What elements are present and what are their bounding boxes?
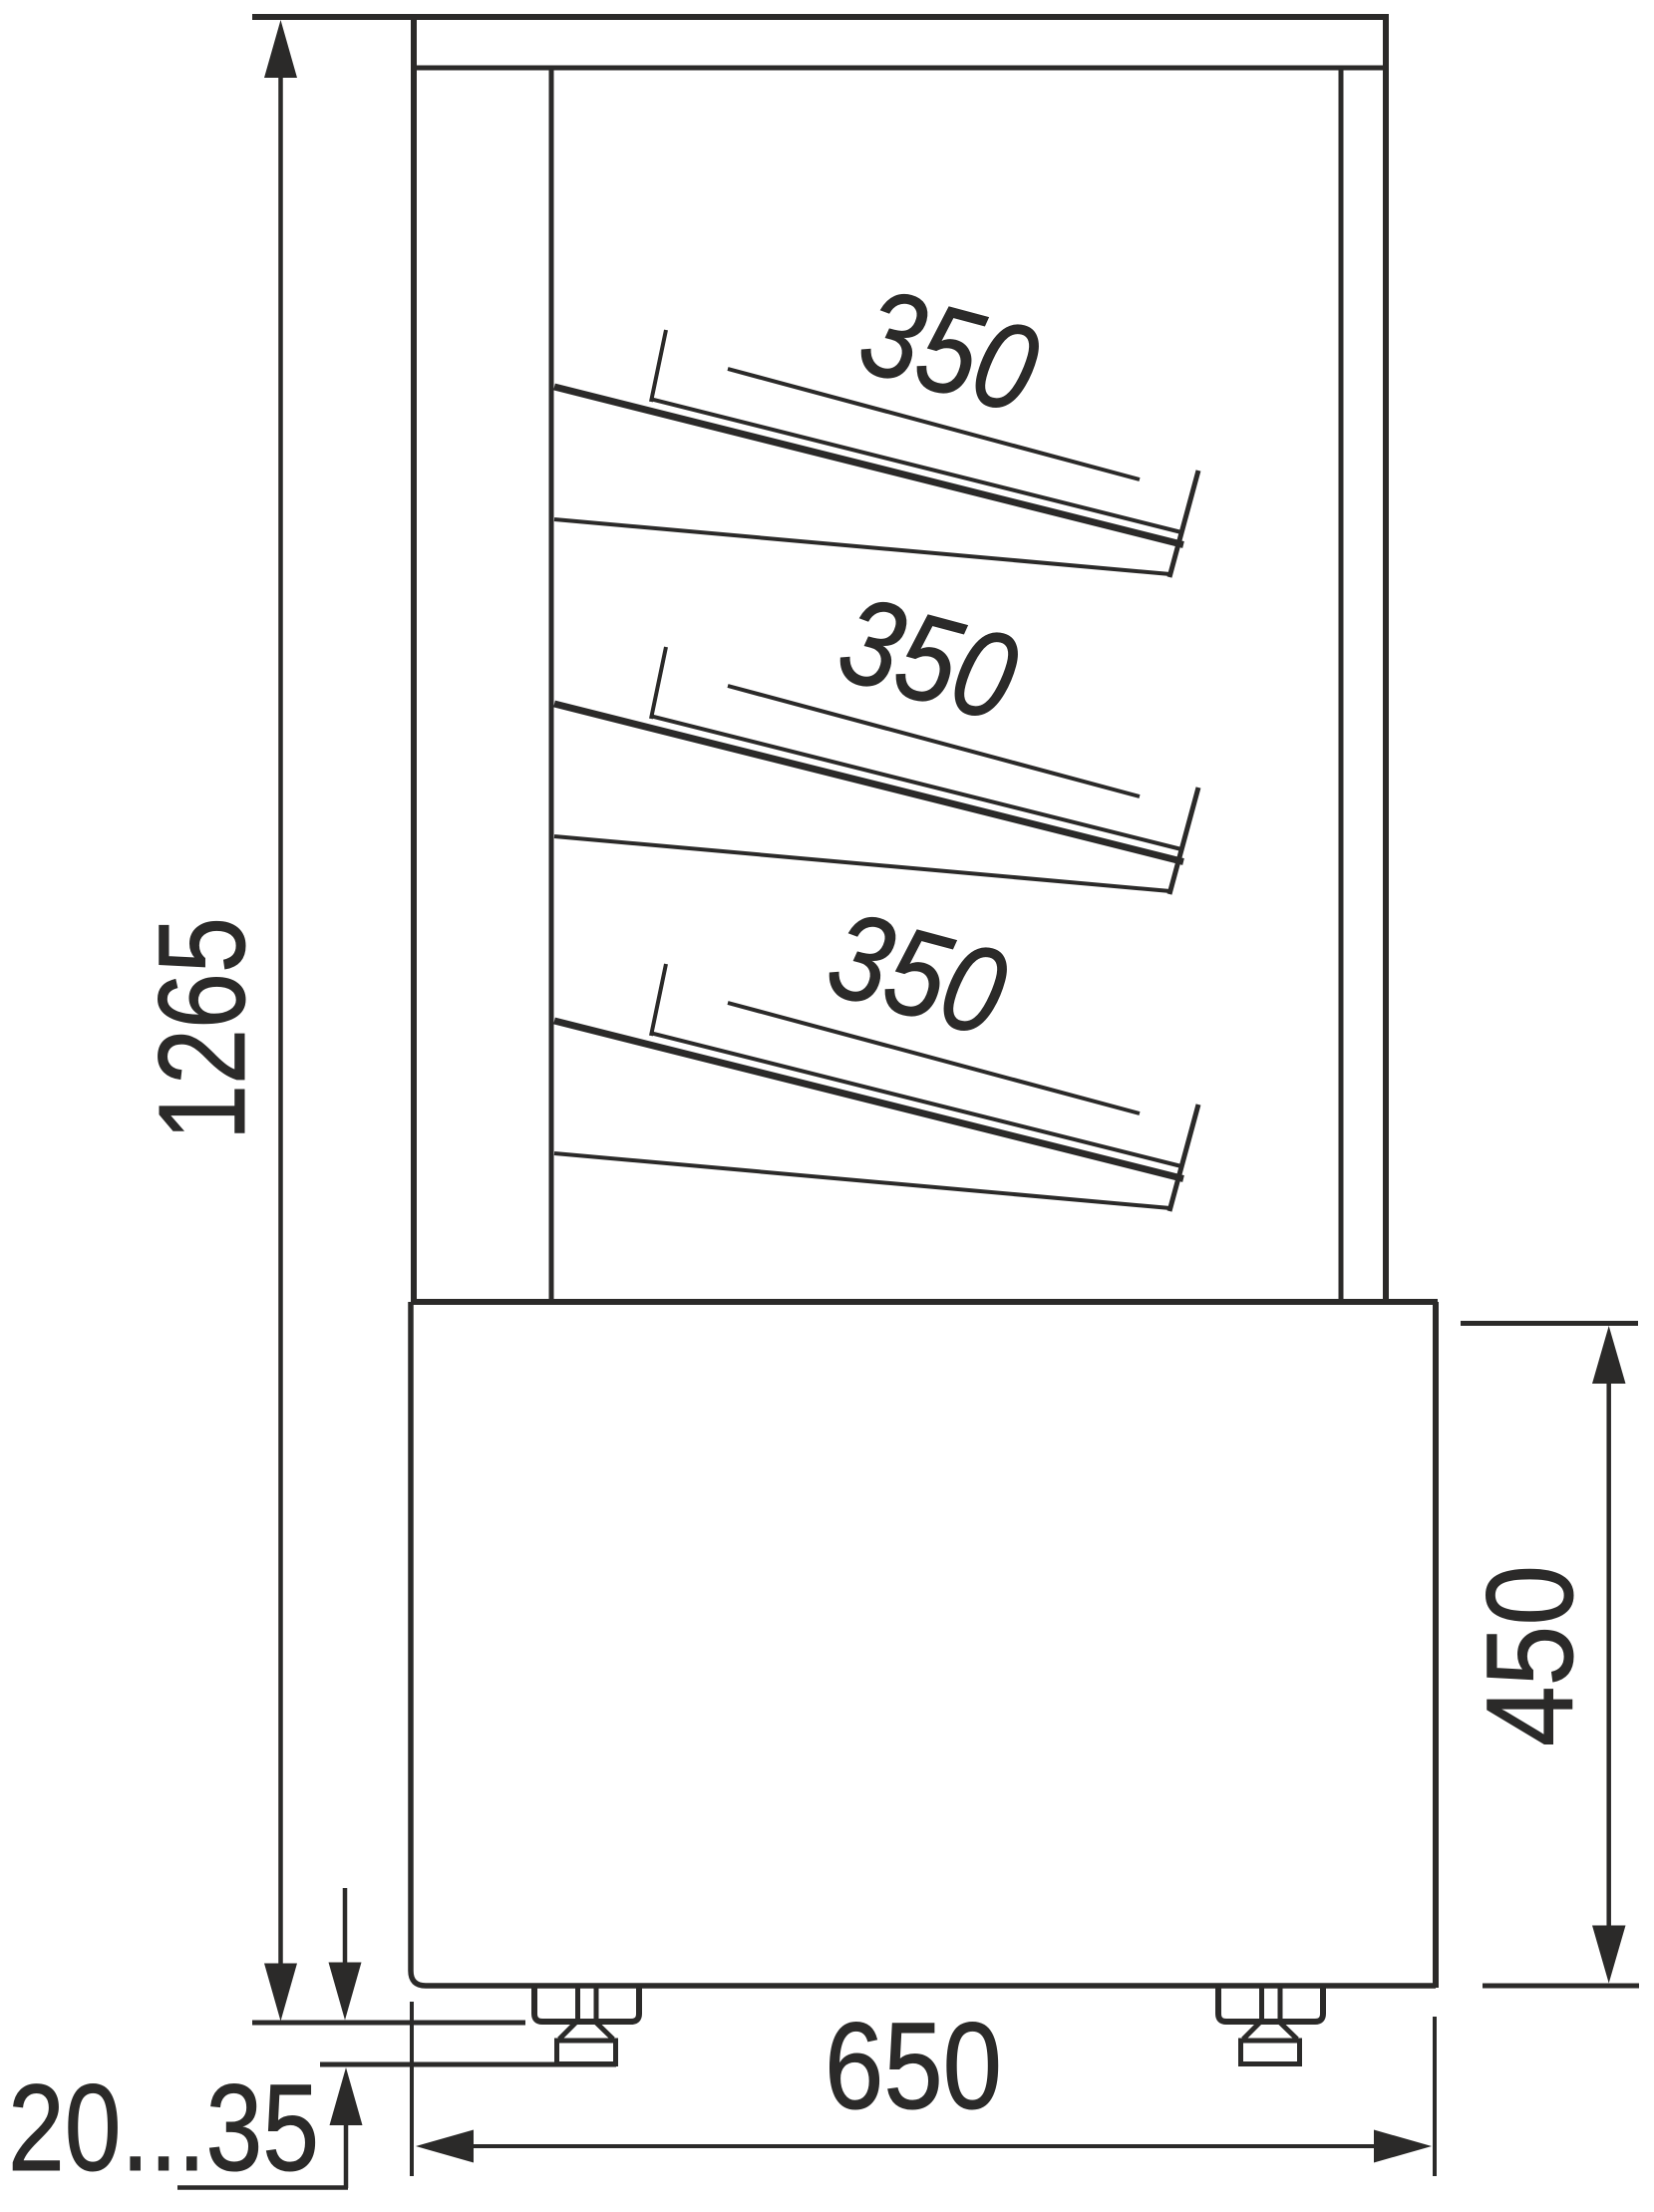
svg-text:350: 350 xyxy=(847,263,1051,441)
svg-text:650: 650 xyxy=(825,1999,1002,2135)
svg-text:450: 450 xyxy=(1463,1565,1599,1746)
svg-text:20...35: 20...35 xyxy=(8,2060,319,2197)
svg-text:1265: 1265 xyxy=(135,917,271,1140)
